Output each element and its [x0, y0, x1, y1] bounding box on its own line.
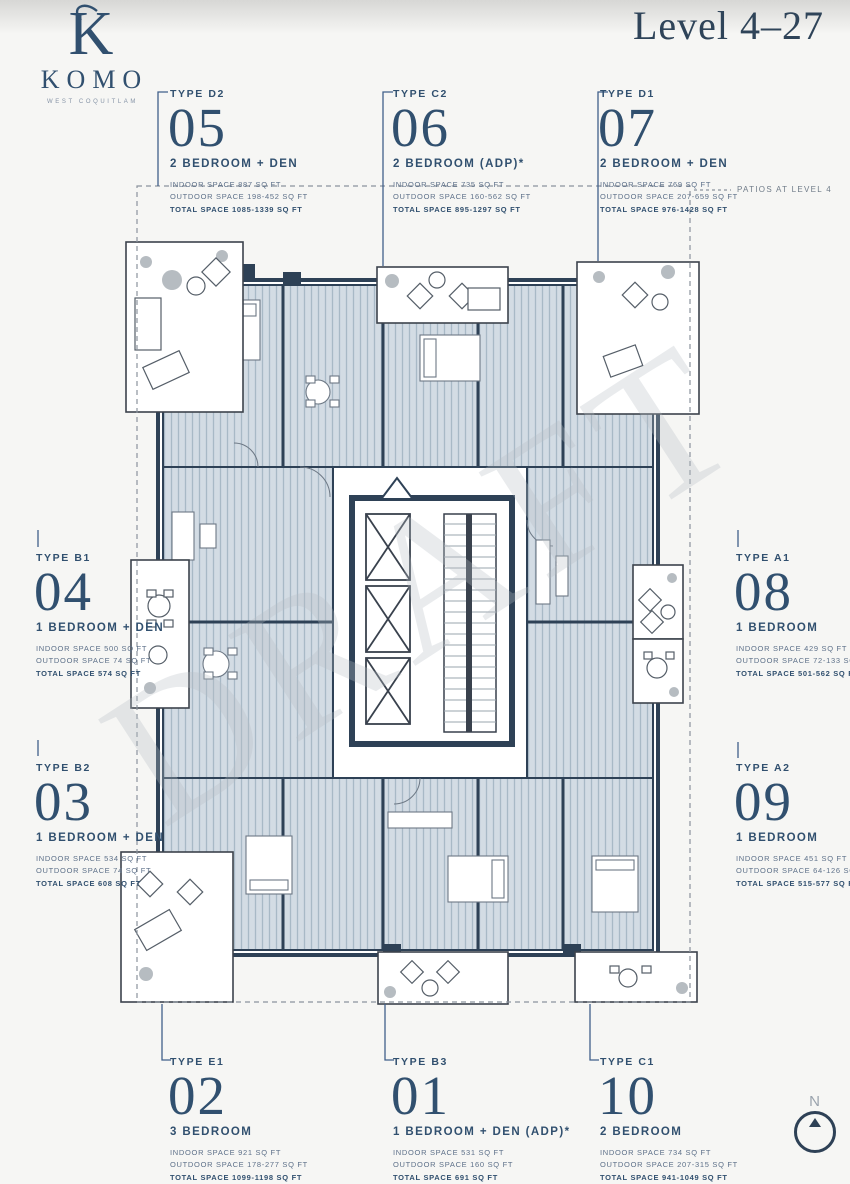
core — [352, 478, 512, 744]
unit-indoor-space: INDOOR SPACE 500 SQ FT — [36, 643, 164, 655]
unit-number: 03 — [34, 774, 164, 829]
unit-label-09: TYPE A2 09 1 BEDROOM INDOOR SPACE 451 SQ… — [736, 762, 850, 890]
unit-total-space: TOTAL SPACE 976-1428 SQ FT — [600, 204, 738, 216]
north-triangle-icon — [809, 1118, 821, 1127]
unit-name: 2 BEDROOM + DEN — [600, 158, 738, 170]
stair — [444, 514, 496, 732]
unit-label-02: TYPE E1 02 3 BEDROOM INDOOR SPACE 921 SQ… — [170, 1056, 308, 1184]
unit-name: 1 BEDROOM + DEN — [36, 832, 164, 844]
north-label: N — [791, 1093, 839, 1110]
north-arrow: N — [791, 1093, 839, 1153]
north-compass-icon — [794, 1111, 836, 1153]
unit-number: 07 — [598, 100, 738, 155]
unit-label-06: TYPE C2 06 2 BEDROOM (ADP)* INDOOR SPACE… — [393, 88, 531, 216]
unit-indoor-space: INDOOR SPACE 734 SQ FT — [600, 1147, 738, 1159]
unit-name: 1 BEDROOM + DEN — [36, 622, 164, 634]
unit-name: 2 BEDROOM + DEN — [170, 158, 308, 170]
unit-outdoor-space: OUTDOOR SPACE 74 SQ FT — [36, 865, 164, 877]
unit-outdoor-space: OUTDOOR SPACE 72-133 SQ FT — [736, 655, 850, 667]
unit-number: 09 — [734, 774, 850, 829]
unit-indoor-space: INDOOR SPACE 534 SQ FT — [36, 853, 164, 865]
unit-total-space: TOTAL SPACE 895-1297 SQ FT — [393, 204, 531, 216]
patio-note: PATIOS AT LEVEL 4 — [737, 185, 832, 194]
unit-outdoor-space: OUTDOOR SPACE 74 SQ FT — [36, 655, 164, 667]
unit-name: 1 BEDROOM + DEN (ADP)* — [393, 1126, 570, 1138]
unit-name: 2 BEDROOM (ADP)* — [393, 158, 531, 170]
unit-indoor-space: INDOOR SPACE 769 SQ FT — [600, 179, 738, 191]
unit-number: 10 — [598, 1068, 738, 1123]
floorplan-page: { "brand": { "monogram": "K", "name": "K… — [0, 0, 850, 1164]
elevators — [366, 514, 410, 724]
unit-label-05: TYPE D2 05 2 BEDROOM + DEN INDOOR SPACE … — [170, 88, 308, 216]
unit-indoor-space: INDOOR SPACE 451 SQ FT — [736, 853, 850, 865]
unit-total-space: TOTAL SPACE 574 SQ FT — [36, 668, 164, 680]
unit-outdoor-space: OUTDOOR SPACE 207-315 SQ FT — [600, 1159, 738, 1171]
unit-label-10: TYPE C1 10 2 BEDROOM INDOOR SPACE 734 SQ… — [600, 1056, 738, 1184]
unit-number: 08 — [734, 564, 850, 619]
unit-label-04: TYPE B1 04 1 BEDROOM + DEN INDOOR SPACE … — [36, 552, 164, 680]
unit-total-space: TOTAL SPACE 691 SQ FT — [393, 1172, 570, 1184]
unit-outdoor-space: OUTDOOR SPACE 160 SQ FT — [393, 1159, 570, 1171]
unit-label-01: TYPE B3 01 1 BEDROOM + DEN (ADP)* INDOOR… — [393, 1056, 570, 1184]
unit-outdoor-space: OUTDOOR SPACE 160-562 SQ FT — [393, 191, 531, 203]
unit-name: 3 BEDROOM — [170, 1126, 308, 1138]
unit-total-space: TOTAL SPACE 501-562 SQ FT — [736, 668, 850, 680]
unit-number: 06 — [391, 100, 531, 155]
unit-outdoor-space: OUTDOOR SPACE 198-452 SQ FT — [170, 191, 308, 203]
unit-outdoor-space: OUTDOOR SPACE 178-277 SQ FT — [170, 1159, 308, 1171]
unit-number: 02 — [168, 1068, 308, 1123]
unit-total-space: TOTAL SPACE 1085-1339 SQ FT — [170, 204, 308, 216]
unit-label-08: TYPE A1 08 1 BEDROOM INDOOR SPACE 429 SQ… — [736, 552, 850, 680]
unit-name: 2 BEDROOM — [600, 1126, 738, 1138]
unit-label-03: TYPE B2 03 1 BEDROOM + DEN INDOOR SPACE … — [36, 762, 164, 890]
unit-number: 05 — [168, 100, 308, 155]
unit-outdoor-space: OUTDOOR SPACE 207-659 SQ FT — [600, 191, 738, 203]
unit-total-space: TOTAL SPACE 515-577 SQ FT — [736, 878, 850, 890]
unit-indoor-space: INDOOR SPACE 887 SQ FT — [170, 179, 308, 191]
unit-indoor-space: INDOOR SPACE 429 SQ FT — [736, 643, 850, 655]
unit-indoor-space: INDOOR SPACE 735 SQ FT — [393, 179, 531, 191]
unit-number: 04 — [34, 564, 164, 619]
unit-label-07: TYPE D1 07 2 BEDROOM + DEN INDOOR SPACE … — [600, 88, 738, 216]
unit-indoor-space: INDOOR SPACE 921 SQ FT — [170, 1147, 308, 1159]
unit-total-space: TOTAL SPACE 608 SQ FT — [36, 878, 164, 890]
unit-number: 01 — [391, 1068, 570, 1123]
unit-name: 1 BEDROOM — [736, 622, 850, 634]
unit-outdoor-space: OUTDOOR SPACE 64-126 SQ FT — [736, 865, 850, 877]
unit-name: 1 BEDROOM — [736, 832, 850, 844]
unit-total-space: TOTAL SPACE 941-1049 SQ FT — [600, 1172, 738, 1184]
unit-total-space: TOTAL SPACE 1099-1198 SQ FT — [170, 1172, 308, 1184]
unit-indoor-space: INDOOR SPACE 531 SQ FT — [393, 1147, 570, 1159]
